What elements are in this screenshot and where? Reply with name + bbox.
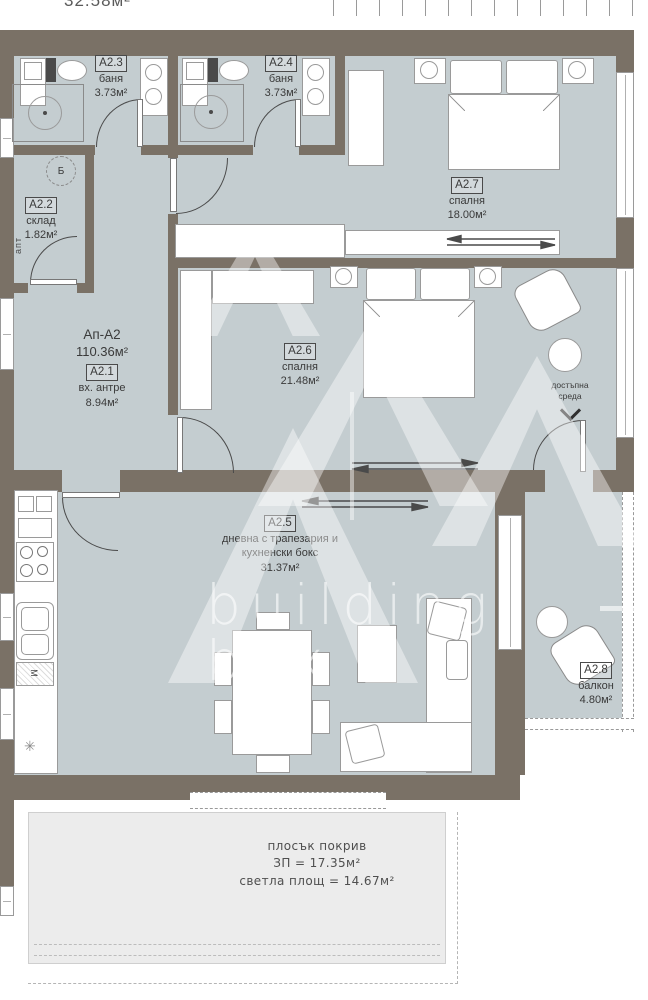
watermark-text-2: box [206,634,332,689]
dining-chair [214,700,232,734]
label-room-a26: A2.6 спалня 21.48м² [263,343,337,389]
window-glass-line [625,75,626,215]
door-leaf-corridor [170,158,177,212]
dining-chair [312,700,330,734]
room-name: спалня [263,360,337,374]
watermark-stem [350,392,354,520]
room-name: склад [8,214,74,228]
window-left5 [0,886,14,916]
label-roof: плосък покрив ЗП = 17.35м² светла площ =… [214,838,420,890]
roof-built-area: ЗП = 17.35м² [214,855,420,872]
watermark-text-1: building [206,578,496,633]
watermark-dash [600,606,646,611]
blanket-fold [543,95,559,111]
wall-left [0,56,14,886]
adjacent-area-text-clipped: 32.58м² [64,0,244,13]
wall-right-seg3 [616,438,634,492]
wall-bath-bedroom [335,56,345,155]
wardrobe-bedroom1 [348,70,384,166]
symbol-star: ✳ [24,738,36,755]
window-sitting [616,268,634,438]
wardrobe-bedroom2-left [180,270,212,410]
window-glass-line [3,714,11,715]
room-area: 3.73м² [70,86,152,100]
room-area: 18.00м² [417,208,517,222]
label-room-a28: A2.8 балкон 4.80м² [556,662,636,708]
toilet-tank [208,58,218,82]
burner [20,564,33,577]
roof-edge-dashes [34,944,440,956]
room-id: A2.4 [265,55,297,72]
room-name-line1: дневна с трапезария и [172,532,388,546]
shower-drain [209,110,213,114]
window-left2 [0,298,14,370]
apartment-area: 110.36м² [50,344,154,361]
adjacent-stair-ticks [333,0,644,16]
window-left3 [0,593,14,641]
burner [37,546,48,557]
door-leaf-storage [30,279,77,285]
sofa-armrest [446,640,468,680]
burner [20,546,33,559]
pillow [366,268,416,300]
window-bedroom1 [616,72,634,218]
room-id: A2.2 [25,197,57,214]
pillow [420,268,470,300]
blanket-fold [449,95,465,111]
window-left4 [0,688,14,740]
wall-storage-right [85,155,94,293]
door-opening-living [62,470,120,492]
room-area: 21.48м² [263,374,337,388]
door-leaf-bath2 [295,99,301,147]
stair-core-label: Б [58,166,65,177]
sink-bowl [21,634,49,655]
label-apartment: Ап-А2 110.36м² A2.1 вх. антре 8.94м² [50,326,154,410]
wall-top [0,30,634,56]
lamp [420,61,438,79]
pillow [506,60,558,94]
round-table [548,338,582,372]
wall-right-seg1 [616,56,634,72]
room-id: A2.7 [451,177,483,194]
label-room-a24: A2.4 баня 3.73м² [240,55,322,101]
label-room-a23: A2.3 баня 3.73м² [70,55,152,101]
roof-clear-area: светла площ = 14.67м² [214,873,420,890]
kitchen-oven [18,518,52,538]
room-area: 3.73м² [240,86,322,100]
wall-bath-divider [168,56,178,155]
bath1-cabinet-box [24,62,42,80]
room-area: 4.80м² [556,693,636,707]
room-name: баня [70,72,152,86]
door-leaf-living [62,492,120,498]
window-glass-line [3,901,11,902]
window-glass-line [3,617,11,618]
bath2-cabinet-box [186,62,204,80]
adjacent-area-text: 32.58м² [64,0,244,11]
label-room-a22: A2.2 склад 1.82м² [8,197,74,243]
sink-bowl [21,607,49,631]
room-id: A2.8 [580,662,612,679]
dining-chair [256,755,290,773]
burner [37,564,48,575]
door-leaf-bedroom2 [177,417,183,473]
roof-title: плосък покрив [214,838,420,855]
pillow [450,60,502,94]
room-id: A2.3 [95,55,127,72]
apartment-id: Ап-А2 [50,326,154,344]
stair-core-marker: Б [46,156,76,186]
lamp [568,61,586,79]
lamp [335,268,352,285]
room-area: 1.82м² [8,228,74,242]
label-room-a27: A2.7 спалня 18.00м² [417,177,517,223]
window-glass-line [3,138,11,139]
window-glass-line [625,271,626,435]
room-name: спалня [417,194,517,208]
lamp [479,268,496,285]
balcony-railing-bottom [525,718,634,730]
wall-right-seg2 [616,218,634,268]
room-name: баня [240,72,322,86]
window-glass-line [510,518,511,647]
round-table [536,606,568,638]
radiator-bedroom1 [445,234,557,250]
dishwasher-label: М [29,669,39,677]
kitchen-module [18,496,34,512]
room-name: балкон [556,679,636,693]
shower-drain [43,111,47,115]
room-id: A2.6 [284,343,316,360]
toilet-tank [46,58,56,82]
kitchen-module [36,496,52,512]
window-glass-line [3,334,11,335]
door-leaf-bath1 [137,99,143,147]
floor-plan: 32.58м² [0,0,648,1000]
roof-railing [190,792,386,809]
room-area: 8.94м² [50,396,154,410]
room-id: A2.1 [86,364,118,381]
room-name: вх. антре [50,381,154,395]
window-living-balcony-door [498,515,522,650]
blanket-fold [364,301,380,317]
blanket-fold [458,301,474,317]
